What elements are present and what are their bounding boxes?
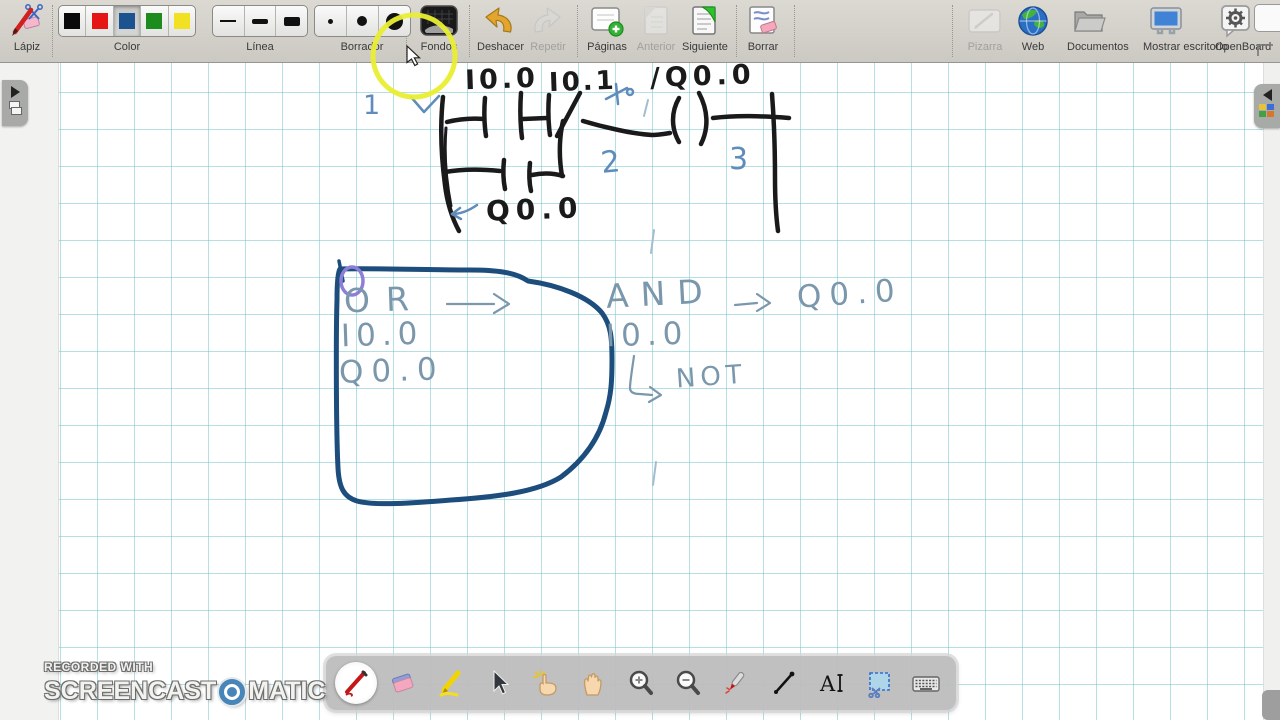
documents-icon [1071,5,1107,37]
board-mode-icon [966,5,1004,37]
color-group-label: Color [58,41,196,53]
eraser-tool[interactable] [381,659,425,707]
text-tool[interactable]: A [809,659,853,707]
line-icon [769,668,799,698]
pen-tools-icon [9,3,45,39]
line-width-thick-button[interactable] [276,6,307,36]
pen-tool[interactable] [334,659,378,707]
erase-page-label: Borrar [741,41,785,53]
pages-mini-icon [9,101,21,115]
clipped-toolbar-glyph [1257,44,1273,56]
keyboard-icon [910,668,942,698]
capture-tool[interactable] [857,659,901,707]
ladder-mark-1: 1 [363,92,380,119]
color-swatch-black[interactable] [59,6,86,36]
note-or-title: OR [343,282,425,318]
page-margin-right [1262,62,1280,720]
previous-page-icon [639,4,673,38]
erase-page-button[interactable]: Borrar [741,2,785,60]
color-group: Color [58,2,196,60]
pages-button[interactable]: Páginas [586,2,628,60]
ladder-mark-2: 2 [599,147,621,179]
next-page-icon [687,4,721,38]
laser-pointer-icon [721,668,751,698]
main-toolbar: Lápiz Color Línea [0,0,1280,63]
watermark-brand-right: MATIC [248,677,325,706]
openboard-window: I0.0 I0.1 /Q0.0 Q0.0 1 2 3 OR I0.0 Q0.0 … [0,0,1280,720]
note-and-input: I0.0 [605,319,688,353]
line-tool[interactable] [762,659,806,707]
zoom-in-tool[interactable] [619,659,663,707]
ladder-label-contact1: I0.0 [465,65,540,95]
backgrounds-icon [420,4,458,38]
web-browser-button[interactable]: Web [1014,2,1052,60]
virtual-keyboard-tool[interactable] [904,659,948,707]
toolbar-separator [577,5,578,57]
toolbar-separator [736,5,737,57]
note-and-title: AND [605,274,715,313]
pages-icon [588,4,626,38]
library-panel-tab[interactable] [1254,84,1280,128]
zoom-out-tool[interactable] [666,659,710,707]
pen-tools-button[interactable]: Lápiz [4,2,50,60]
pen-tools-label: Lápiz [4,41,50,53]
web-browser-label: Web [1014,41,1052,53]
hand-tool[interactable] [571,659,615,707]
library-mini-icons [1259,104,1275,117]
eraser-small-button[interactable] [315,6,347,36]
hand-icon [578,668,608,698]
redo-icon [530,5,566,37]
line-width-label: Línea [212,41,308,53]
ladder-label-contact2: I0.1 [549,68,618,96]
undo-label: Deshacer [477,41,519,53]
next-page-label: Siguiente [682,41,726,53]
page-margin-left [0,62,58,720]
text-icon: A [816,668,846,698]
redo-label: Repetir [527,41,569,53]
svg-text:A: A [819,672,836,696]
show-desktop-label: Mostrar escritorio [1143,41,1189,53]
eraser-medium-button[interactable] [347,6,379,36]
gear-icon [1218,3,1254,39]
backgrounds-button[interactable]: Fondos [418,2,460,60]
screencast-o-matic-logo-icon [219,679,245,705]
previous-page-label: Anterior [635,41,677,53]
toolbar-separator [794,5,795,57]
toolbar-separator [952,5,953,57]
line-width-group: Línea [212,2,308,60]
note-not-label: NOT [675,362,747,393]
color-swatch-yellow[interactable] [169,6,195,36]
documents-button[interactable]: Documentos [1067,2,1111,60]
bottom-right-tab[interactable] [1262,690,1280,720]
undo-button[interactable]: Deshacer [477,2,519,60]
laser-pointer-tool[interactable] [714,659,758,707]
zoom-in-icon [626,668,656,698]
cursor-arrow-icon [483,668,513,698]
eraser-large-button[interactable] [379,6,410,36]
capture-icon [864,668,894,698]
note-or-input1: I0.0 [340,319,423,353]
ladder-mark-3: 3 [729,145,748,175]
interact-tool[interactable] [524,659,568,707]
highlighter-tool[interactable] [429,659,473,707]
board-mode-label: Pizarra [963,41,1007,53]
magic-finger-icon [531,668,561,698]
screencast-watermark: RECORDED WITH SCREENCAST MATIC [44,660,326,706]
clipped-toolbar-button[interactable] [1254,4,1280,32]
show-desktop-button[interactable]: Mostrar escritorio [1143,2,1189,60]
color-swatch-blue[interactable] [114,6,141,36]
line-width-medium-button[interactable] [245,6,277,36]
whiteboard-canvas[interactable] [58,62,1264,720]
documents-label: Documentos [1067,41,1111,53]
pages-label: Páginas [586,41,628,53]
color-swatch-green[interactable] [141,6,168,36]
backgrounds-label: Fondos [418,41,460,53]
note-or-input2: Q0.0 [338,354,445,389]
toolbar-separator [469,5,470,57]
toolbar-separator [52,5,53,57]
next-page-button[interactable]: Siguiente [682,2,726,60]
previous-page-button[interactable]: Anterior [635,2,677,60]
redo-button[interactable]: Repetir [527,2,569,60]
web-browser-icon [1016,4,1050,38]
eraser-size-label: Borrador [312,41,412,53]
zoom-out-icon [673,668,703,698]
watermark-recorded-with: RECORDED WITH [44,660,326,674]
ladder-label-branch: Q0.0 [486,194,584,225]
ladder-label-coil: /Q0.0 [650,61,757,92]
eraser-icon [388,668,418,698]
pen-icon [341,668,371,698]
undo-icon [480,5,516,37]
watermark-brand-left: SCREENCAST [44,677,216,706]
openboard-menu-button[interactable]: OpenBoard [1215,2,1257,60]
board-mode-button[interactable]: Pizarra [963,2,1007,60]
expand-right-icon [11,86,20,98]
selector-tool[interactable] [476,659,520,707]
color-swatch-red[interactable] [86,6,113,36]
page-navigator-tab[interactable] [2,80,28,126]
erase-page-icon [745,4,781,38]
stylus-dock: A [326,656,956,710]
openboard-menu-label: OpenBoard [1215,41,1257,53]
show-desktop-icon [1147,4,1185,38]
expand-left-icon [1263,89,1272,101]
highlighter-icon [436,668,466,698]
eraser-size-group: Borrador [312,2,412,60]
note-and-output: Q0.0 [796,275,904,313]
line-width-thin-button[interactable] [213,6,245,36]
